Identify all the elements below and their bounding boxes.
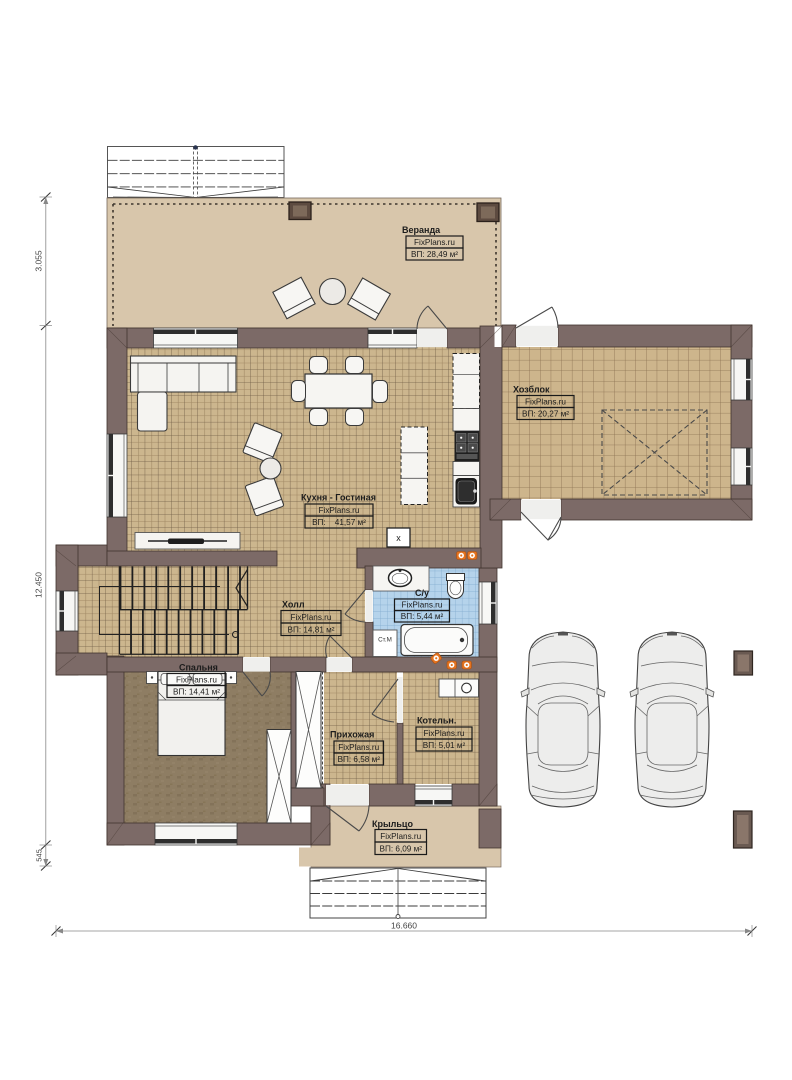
svg-text:FixPlans.ru: FixPlans.ru [380, 832, 421, 841]
svg-text:ВП: 20,27 м²: ВП: 20,27 м² [522, 410, 569, 419]
svg-text:545: 545 [35, 849, 44, 862]
svg-text:FixPlans.ru: FixPlans.ru [338, 743, 379, 752]
svg-text:16.660: 16.660 [391, 921, 417, 931]
svg-text:Ст.М: Ст.М [378, 637, 392, 644]
svg-text:Холл: Холл [282, 600, 305, 610]
svg-text:ВП: 5,01 м²: ВП: 5,01 м² [423, 741, 466, 750]
svg-text:12.450: 12.450 [34, 572, 44, 598]
svg-text:x: x [396, 533, 401, 543]
svg-text:FixPlans.ru: FixPlans.ru [291, 613, 332, 622]
svg-text:ВП: 5,44 м²: ВП: 5,44 м² [401, 612, 444, 621]
svg-text:Кухня - Гостиная: Кухня - Гостиная [301, 493, 376, 503]
svg-text:FixPlans.ru: FixPlans.ru [319, 506, 360, 515]
svg-text:FixPlans.ru: FixPlans.ru [525, 398, 566, 407]
svg-text:ВП: 14,41 м²: ВП: 14,41 м² [173, 688, 220, 697]
svg-text:ВП: 41,57 м²: ВП: 41,57 м² [312, 518, 366, 527]
svg-text:Спальня: Спальня [179, 663, 218, 673]
svg-text:С/у: С/у [415, 588, 429, 598]
svg-text:Хозблок: Хозблок [513, 385, 550, 395]
svg-text:FixPlans.ru: FixPlans.ru [414, 238, 455, 247]
svg-text:ВП: 6,09 м²: ВП: 6,09 м² [380, 845, 423, 854]
svg-text:Котельн.: Котельн. [417, 716, 456, 726]
svg-text:Крыльцо: Крыльцо [372, 819, 413, 829]
svg-text:3.055: 3.055 [34, 250, 44, 272]
svg-text:FixPlans.ru: FixPlans.ru [402, 601, 443, 610]
svg-text:ВП: 28,49 м²: ВП: 28,49 м² [411, 250, 458, 259]
svg-text:FixPlans.ru: FixPlans.ru [424, 729, 465, 738]
svg-text:FixPlans.ru: FixPlans.ru [176, 676, 217, 685]
svg-text:ВП: 6,58 м²: ВП: 6,58 м² [338, 755, 381, 764]
svg-text:ВП: 14,81 м²: ВП: 14,81 м² [287, 626, 334, 635]
svg-text:Веранда: Веранда [402, 225, 441, 235]
svg-text:Прихожая: Прихожая [330, 730, 374, 740]
